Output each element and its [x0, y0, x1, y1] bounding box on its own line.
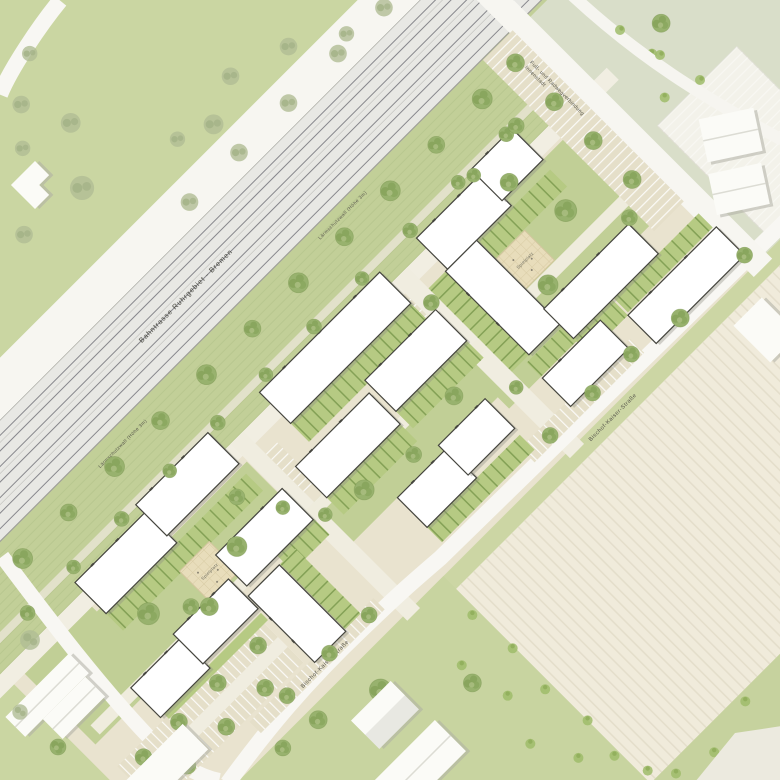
tree — [12, 704, 27, 719]
shrub — [655, 50, 665, 60]
shrub — [615, 25, 625, 35]
tree — [50, 739, 66, 755]
shrub — [695, 75, 705, 85]
site-plan-map: Bahntrasse Ruhrgebiet - Bremen Lärmschut… — [0, 0, 780, 780]
site-plan-page: Bahntrasse Ruhrgebiet - Bremen Lärmschut… — [0, 0, 780, 780]
tree — [20, 630, 40, 650]
